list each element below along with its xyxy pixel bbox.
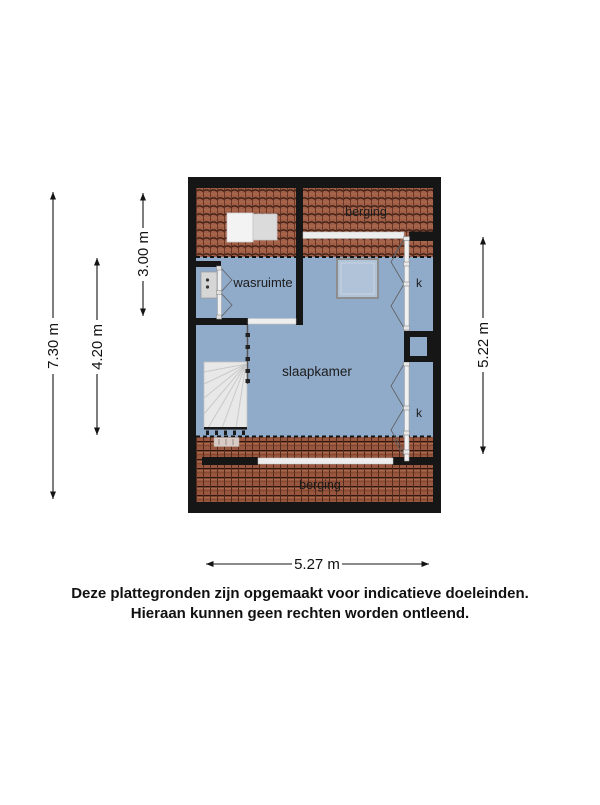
dimension-label-height-floor: 4.20 m xyxy=(89,324,106,370)
dimension-label-height-top-section: 3.00 m xyxy=(135,231,152,277)
washing-machine-icon xyxy=(201,272,217,298)
disclaimer-line1: Deze plattegronden zijn opgemaakt voor i… xyxy=(0,584,600,604)
disclaimer-text: Deze plattegronden zijn opgemaakt voor i… xyxy=(0,584,600,623)
dimension-label-height-total: 7.30 m xyxy=(45,323,62,369)
floor-plan-figure: berging wasruimte slaapkamer k k berging… xyxy=(0,0,600,800)
room-label-kast-bottom: k xyxy=(416,406,423,420)
room-label-wasruimte: wasruimte xyxy=(232,275,292,290)
room-label-berging-top: berging xyxy=(345,205,387,219)
dormer-under-stairs xyxy=(214,438,239,447)
room-label-berging-bottom: berging xyxy=(299,478,341,492)
floorplan-page: berging wasruimte slaapkamer k k berging… xyxy=(0,0,600,800)
disclaimer-line2: Hieraan kunnen geen rechten worden ontle… xyxy=(0,604,600,624)
dimension-label-height-right: 5.22 m xyxy=(475,322,492,368)
room-label-kast-top: k xyxy=(416,276,423,290)
dimension-label-width-bottom: 5.27 m xyxy=(294,556,340,573)
roof-window-icon xyxy=(337,259,378,298)
room-label-slaapkamer: slaapkamer xyxy=(282,364,352,379)
duct-shaft xyxy=(404,331,433,362)
skylight-icon xyxy=(227,213,277,242)
